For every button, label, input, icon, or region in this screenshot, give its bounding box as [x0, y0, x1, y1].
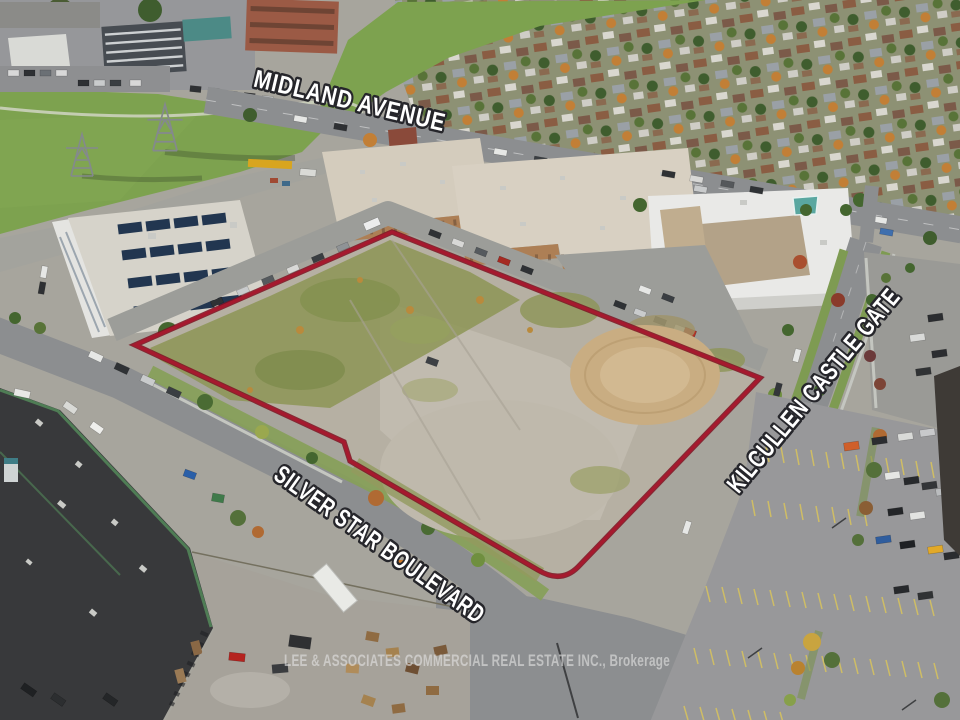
aerial-photo: MIDLAND AVENUE SILVER STAR BOULEVARD KIL… — [0, 0, 960, 720]
aerial-photo-canvas: MIDLAND AVENUE SILVER STAR BOULEVARD KIL… — [0, 0, 960, 720]
red-car — [229, 652, 246, 662]
white-building — [8, 34, 70, 70]
apartment-buildings — [245, 0, 339, 54]
brokerage-watermark: LEE & ASSOCIATES COMMERCIAL REAL ESTATE … — [284, 651, 670, 670]
teal-roof-building — [182, 16, 231, 41]
shops-roof — [0, 2, 100, 28]
